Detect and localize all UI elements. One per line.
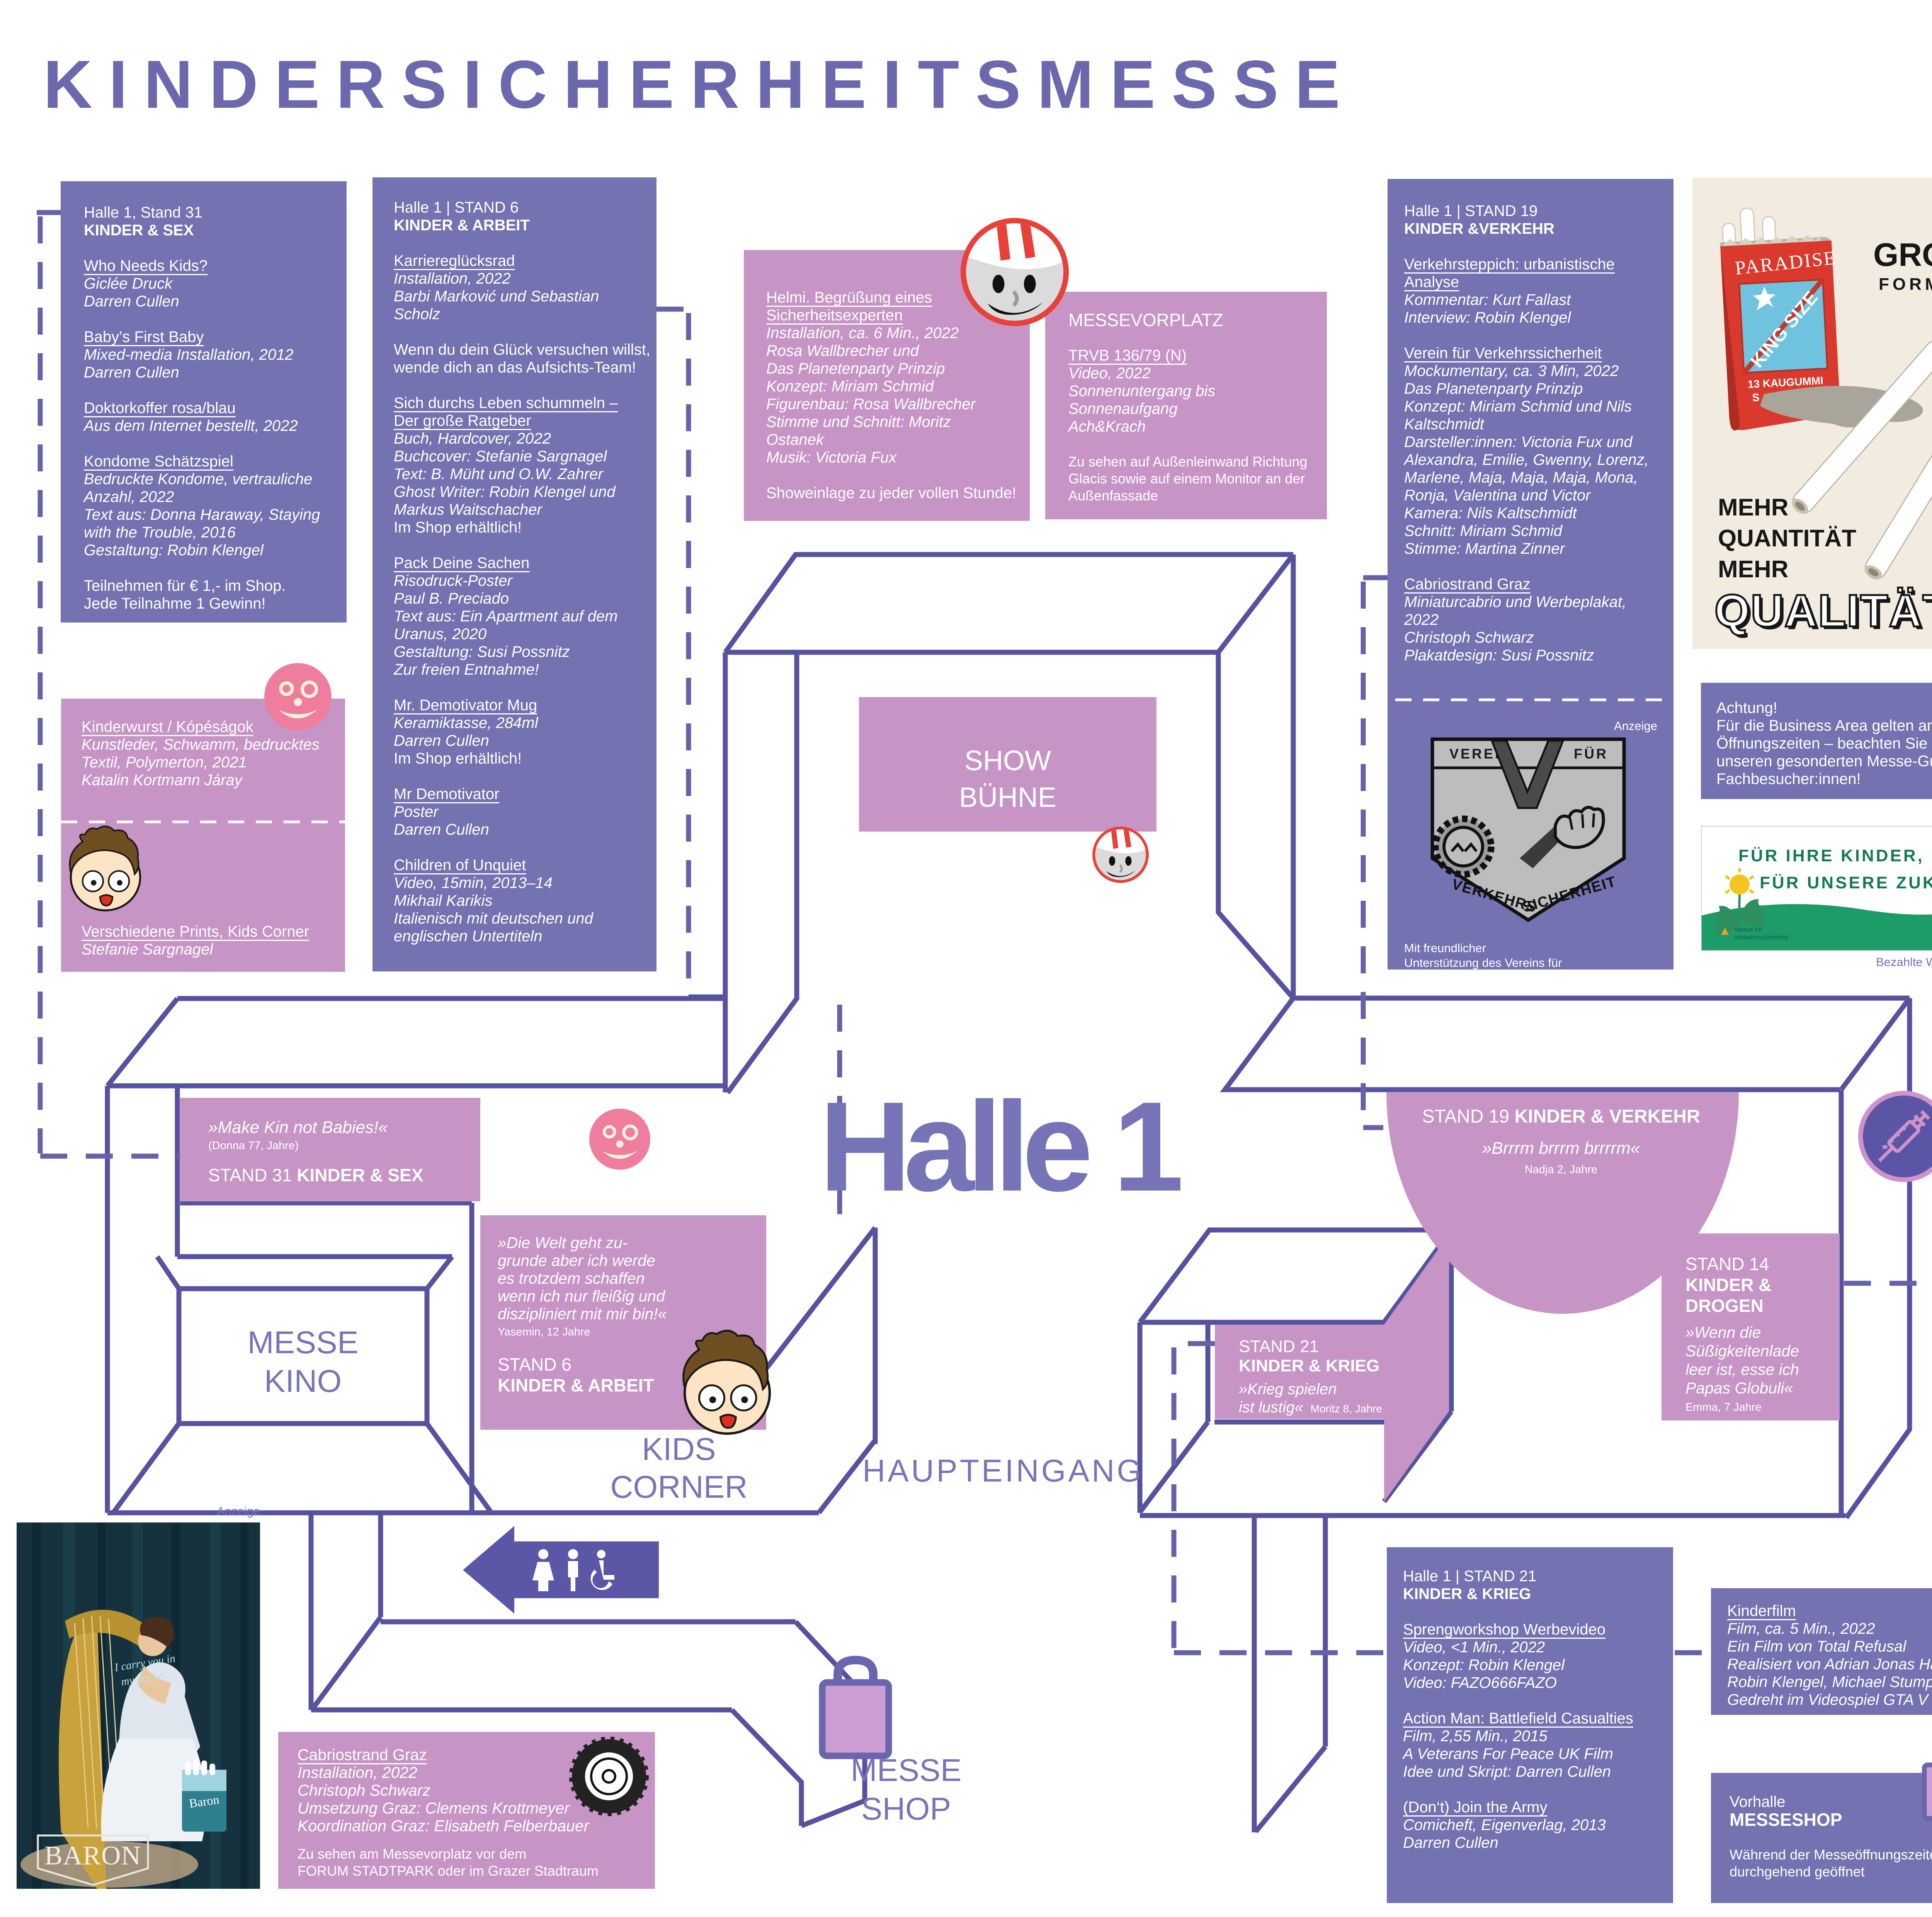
svg-text:QUALITÄT: QUALITÄT bbox=[1714, 585, 1932, 636]
svg-text:FÜR UNSERE ZUKUNFT!: FÜR UNSERE ZUKUNFT! bbox=[1760, 873, 1932, 892]
svg-text:FÜR IHRE KINDER,: FÜR IHRE KINDER, bbox=[1738, 846, 1924, 865]
svg-text:MEHR: MEHR bbox=[1718, 494, 1789, 521]
svg-text:QUANTITÄT: QUANTITÄT bbox=[1718, 525, 1856, 552]
svg-text:FÜR: FÜR bbox=[1574, 746, 1608, 762]
svg-text:GROSS: GROSS bbox=[1873, 236, 1932, 273]
svg-text:Verkehrssicherheit: Verkehrssicherheit bbox=[1734, 934, 1788, 941]
svg-text:MEHR: MEHR bbox=[1718, 556, 1789, 583]
svg-text:FORMAT: FORMAT bbox=[1879, 275, 1932, 294]
svg-text:BARON: BARON bbox=[44, 1841, 141, 1871]
svg-text:Verein für: Verein für bbox=[1734, 926, 1762, 933]
